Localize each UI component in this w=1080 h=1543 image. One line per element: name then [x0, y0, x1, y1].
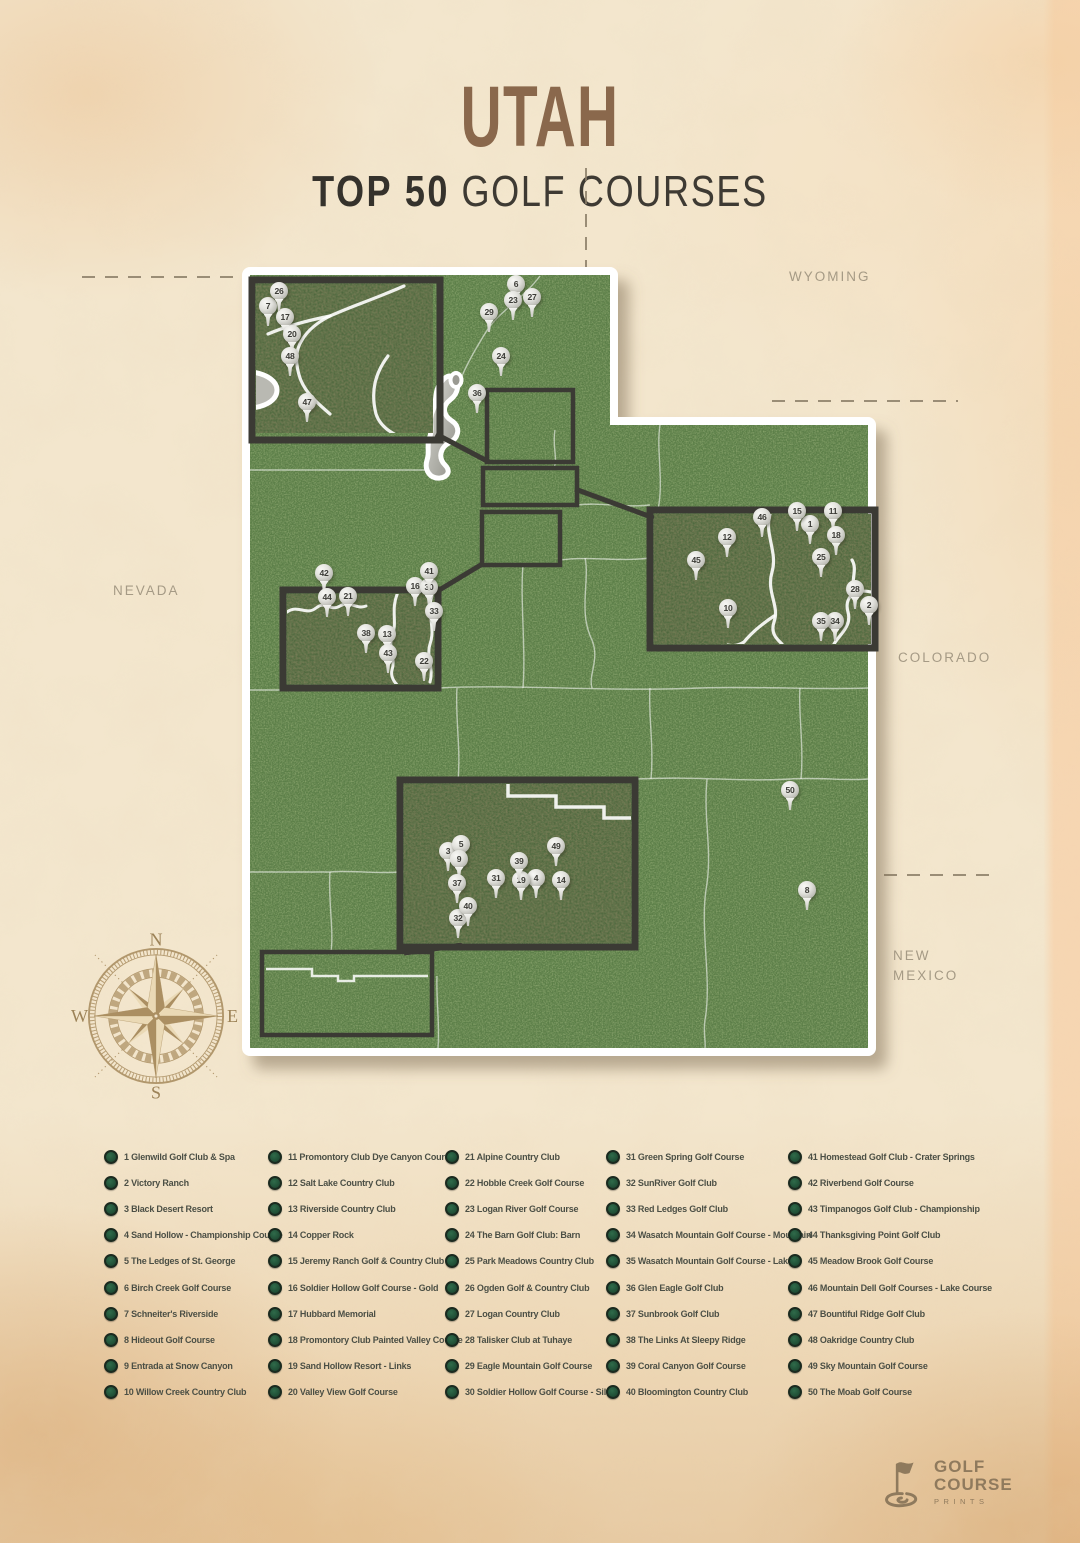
golf-ball-icon: 41 — [420, 562, 438, 580]
legend-item-6: 6 Birch Creek Golf Course — [104, 1274, 283, 1300]
golf-tee-icon — [865, 613, 874, 625]
legend-item-label: 39 Coral Canyon Golf Course — [626, 1361, 746, 1371]
legend-bullet-icon — [788, 1202, 802, 1216]
golf-tee-icon — [485, 320, 494, 332]
legend-item-13: 13 Riverside Country Club — [268, 1196, 463, 1222]
legend-item-31: 31 Green Spring Golf Course — [606, 1144, 811, 1170]
golf-tee-icon — [851, 597, 860, 609]
map-pin-31[interactable]: 31 — [486, 869, 506, 898]
map-pin-33[interactable]: 33 — [424, 602, 444, 631]
golf-ball-icon: 8 — [798, 881, 816, 899]
legend-bullet-icon — [606, 1202, 620, 1216]
map-pin-45[interactable]: 45 — [686, 551, 706, 580]
map-pin-8[interactable]: 8 — [797, 881, 817, 910]
legend-item-label: 3 Black Desert Resort — [124, 1204, 213, 1214]
legend-bullet-icon — [445, 1254, 459, 1268]
legend-item-label: 6 Birch Creek Golf Course — [124, 1283, 231, 1293]
poster: UTAH TOP 50GOLF COURSES — [0, 0, 1080, 1543]
legend-item-label: 30 Soldier Hollow Golf Course - Silver — [465, 1387, 619, 1397]
legend-item-43: 43 Timpanogos Golf Club - Championship — [788, 1196, 992, 1222]
legend-item-label: 28 Talisker Club at Tuhaye — [465, 1335, 572, 1345]
state-label-new-mexico-line2: MEXICO — [893, 966, 958, 986]
legend-item-label: 50 The Moab Golf Course — [808, 1387, 912, 1397]
map-pin-50[interactable]: 50 — [780, 781, 800, 810]
map-pin-43[interactable]: 43 — [378, 644, 398, 673]
legend-bullet-icon — [104, 1176, 118, 1190]
golf-tee-icon — [692, 568, 701, 580]
legend-item-label: 21 Alpine Country Club — [465, 1152, 560, 1162]
legend-item-label: 12 Salt Lake Country Club — [288, 1178, 395, 1188]
golf-tee-icon — [532, 886, 541, 898]
legend-bullet-icon — [445, 1281, 459, 1295]
golf-tee-icon — [817, 629, 826, 641]
legend-bullet-icon — [606, 1281, 620, 1295]
golf-tee-icon — [275, 299, 284, 311]
golf-flag-icon — [878, 1458, 930, 1512]
map-pin-28[interactable]: 28 — [845, 580, 865, 609]
state-label-colorado: COLORADO — [898, 650, 991, 665]
logo-line1: GOLF — [934, 1458, 1013, 1476]
legend-item-25: 25 Park Meadows Country Club — [445, 1248, 619, 1274]
golf-tee-icon — [430, 619, 439, 631]
golf-ball-icon: 47 — [298, 393, 316, 411]
legend-item-label: 36 Glen Eagle Golf Club — [626, 1283, 723, 1293]
golf-tee-icon — [454, 926, 463, 938]
legend-item-label: 16 Soldier Hollow Golf Course - Gold — [288, 1283, 438, 1293]
golf-ball-icon: 48 — [281, 347, 299, 365]
map-pin-25[interactable]: 25 — [811, 548, 831, 577]
legend-item-7: 7 Schneiter's Riverside — [104, 1301, 283, 1327]
legend-item-23: 23 Logan River Golf Course — [445, 1196, 619, 1222]
state-label-new-mexico: NEW MEXICO — [893, 946, 958, 987]
legend-bullet-icon — [606, 1307, 620, 1321]
legend-bullet-icon — [104, 1333, 118, 1347]
legend-item-37: 37 Sunbrook Golf Club — [606, 1301, 811, 1327]
legend-item-42: 42 Riverbend Golf Course — [788, 1170, 992, 1196]
legend-item-label: 8 Hideout Golf Course — [124, 1335, 215, 1345]
golf-ball-icon: 26 — [270, 282, 288, 300]
golf-course-prints-logo: GOLF COURSE PRINTS — [878, 1458, 1013, 1512]
legend-item-label: 15 Jeremy Ranch Golf & Country Club — [288, 1256, 444, 1266]
legend-bullet-icon — [788, 1254, 802, 1268]
legend-bullet-icon — [788, 1307, 802, 1321]
map-pin-39[interactable]: 39 — [509, 852, 529, 881]
legend-bullet-icon — [788, 1281, 802, 1295]
legend-item-8: 8 Hideout Golf Course — [104, 1327, 283, 1353]
legend-item-label: 1 Glenwild Golf Club & Spa — [124, 1152, 235, 1162]
map-pin-27[interactable]: 27 — [522, 288, 542, 317]
legend-item-label: 49 Sky Mountain Golf Course — [808, 1361, 928, 1371]
map-pin-35[interactable]: 35 — [811, 612, 831, 641]
golf-ball-icon: 40 — [459, 897, 477, 915]
legend-item-label: 5 The Ledges of St. George — [124, 1256, 235, 1266]
golf-tee-icon — [344, 604, 353, 616]
legend-bullet-icon — [104, 1254, 118, 1268]
golf-ball-icon: 9 — [450, 850, 468, 868]
legend-item-label: 45 Meadow Brook Golf Course — [808, 1256, 933, 1266]
legend-item-14: 14 Copper Rock — [268, 1222, 463, 1248]
legend-item-label: 48 Oakridge Country Club — [808, 1335, 914, 1345]
golf-ball-icon: 25 — [812, 548, 830, 566]
legend-item-28: 28 Talisker Club at Tuhaye — [445, 1327, 619, 1353]
legend-item-label: 11 Promontory Club Dye Canyon Course — [288, 1152, 454, 1162]
golf-ball-icon: 44 — [318, 588, 336, 606]
golf-ball-icon: 14 — [552, 871, 570, 889]
legend-bullet-icon — [268, 1176, 282, 1190]
legend-item-32: 32 SunRiver Golf Club — [606, 1170, 811, 1196]
golf-tee-icon — [557, 888, 566, 900]
golf-ball-icon: 23 — [504, 291, 522, 309]
golf-tee-icon — [286, 364, 295, 376]
legend-bullet-icon — [606, 1254, 620, 1268]
legend-bullet-icon — [268, 1333, 282, 1347]
compass-south-label: S — [151, 1083, 161, 1102]
legend-item-label: 22 Hobble Creek Golf Course — [465, 1178, 584, 1188]
legend-item-3: 3 Black Desert Resort — [104, 1196, 283, 1222]
golf-ball-icon: 18 — [827, 526, 845, 544]
legend-item-29: 29 Eagle Mountain Golf Course — [445, 1353, 619, 1379]
legend-item-33: 33 Red Ledges Golf Club — [606, 1196, 811, 1222]
legend-bullet-icon — [788, 1333, 802, 1347]
map-pin-29[interactable]: 29 — [479, 303, 499, 332]
compass-west-label: W — [71, 1006, 88, 1026]
golf-ball-icon: 49 — [547, 837, 565, 855]
map-pin-22[interactable]: 22 — [414, 652, 434, 681]
compass-east-label: E — [227, 1006, 238, 1026]
legend-item-45: 45 Meadow Brook Golf Course — [788, 1248, 992, 1274]
legend-item-4: 4 Sand Hollow - Championship Course — [104, 1222, 283, 1248]
legend-item-9: 9 Entrada at Snow Canyon — [104, 1353, 283, 1379]
legend-item-label: 31 Green Spring Golf Course — [626, 1152, 744, 1162]
golf-tee-icon — [758, 525, 767, 537]
legend-bullet-icon — [788, 1359, 802, 1373]
golf-tee-icon — [464, 914, 473, 926]
golf-ball-icon: 43 — [379, 644, 397, 662]
legend-bullet-icon — [445, 1150, 459, 1164]
legend-item-1: 1 Glenwild Golf Club & Spa — [104, 1144, 283, 1170]
golf-tee-icon — [509, 308, 518, 320]
legend-bullet-icon — [445, 1385, 459, 1399]
golf-tee-icon — [497, 364, 506, 376]
golf-tee-icon — [323, 605, 332, 617]
golf-tee-icon — [425, 579, 434, 591]
golf-ball-icon: 38 — [357, 624, 375, 642]
map-pin-24[interactable]: 24 — [491, 347, 511, 376]
legend-column-5: 41 Homestead Golf Club - Crater Springs4… — [788, 1144, 992, 1405]
legend-bullet-icon — [268, 1150, 282, 1164]
compass-rose-icon: N E S W — [70, 930, 242, 1102]
legend-column-2: 11 Promontory Club Dye Canyon Course12 S… — [268, 1144, 463, 1405]
golf-tee-icon — [786, 798, 795, 810]
golf-tee-icon — [492, 886, 501, 898]
legend-item-label: 23 Logan River Golf Course — [465, 1204, 578, 1214]
legend-item-label: 43 Timpanogos Golf Club - Championship — [808, 1204, 980, 1214]
legend-item-label: 37 Sunbrook Golf Club — [626, 1309, 719, 1319]
map-pin-47[interactable]: 47 — [297, 393, 317, 422]
legend-item-41: 41 Homestead Golf Club - Crater Springs — [788, 1144, 992, 1170]
golf-tee-icon — [552, 854, 561, 866]
legend-bullet-icon — [788, 1150, 802, 1164]
legend-item-2: 2 Victory Ranch — [104, 1170, 283, 1196]
legend-item-label: 27 Logan Country Club — [465, 1309, 560, 1319]
legend-item-12: 12 Salt Lake Country Club — [268, 1170, 463, 1196]
golf-tee-icon — [831, 629, 840, 641]
legend-item-label: 35 Wasatch Mountain Golf Course - Lake — [626, 1256, 793, 1266]
map-pin-46[interactable]: 46 — [752, 508, 772, 537]
golf-ball-icon: 45 — [687, 551, 705, 569]
map-pin-41[interactable]: 41 — [419, 562, 439, 591]
legend-item-label: 17 Hubbard Memorial — [288, 1309, 376, 1319]
legend-bullet-icon — [104, 1307, 118, 1321]
legend-bullet-icon — [788, 1228, 802, 1242]
map-pin-23[interactable]: 23 — [503, 291, 523, 320]
legend-bullet-icon — [268, 1385, 282, 1399]
golf-tee-icon — [420, 669, 429, 681]
golf-ball-icon: 39 — [510, 852, 528, 870]
state-label-new-mexico-line1: NEW — [893, 946, 958, 966]
legend-item-20: 20 Valley View Golf Course — [268, 1379, 463, 1405]
legend-item-label: 41 Homestead Golf Club - Crater Springs — [808, 1152, 975, 1162]
legend-bullet-icon — [606, 1333, 620, 1347]
legend-item-label: 19 Sand Hollow Resort - Links — [288, 1361, 411, 1371]
map-pin-40[interactable]: 40 — [458, 897, 478, 926]
map-pin-10[interactable]: 10 — [718, 599, 738, 628]
golf-ball-icon: 27 — [523, 288, 541, 306]
legend-bullet-icon — [104, 1385, 118, 1399]
golf-tee-icon — [803, 898, 812, 910]
golf-ball-icon: 15 — [788, 502, 806, 520]
golf-ball-icon: 10 — [719, 599, 737, 617]
legend-bullet-icon — [268, 1228, 282, 1242]
legend-item-label: 10 Willow Creek Country Club — [124, 1387, 246, 1397]
legend-item-label: 44 Thanksgiving Point Golf Club — [808, 1230, 940, 1240]
legend-bullet-icon — [445, 1307, 459, 1321]
legend-bullet-icon — [104, 1281, 118, 1295]
golf-ball-icon: 29 — [480, 303, 498, 321]
legend-bullet-icon — [606, 1385, 620, 1399]
legend-item-label: 18 Promontory Club Painted Valley Course — [288, 1335, 463, 1345]
legend-bullet-icon — [268, 1202, 282, 1216]
legend-bullet-icon — [606, 1359, 620, 1373]
legend-item-label: 40 Bloomington Country Club — [626, 1387, 748, 1397]
legend-item-48: 48 Oakridge Country Club — [788, 1327, 992, 1353]
map-pin-44[interactable]: 44 — [317, 588, 337, 617]
legend-item-label: 13 Riverside Country Club — [288, 1204, 396, 1214]
legend-bullet-icon — [606, 1228, 620, 1242]
golf-tee-icon — [515, 869, 524, 881]
legend-item-36: 36 Glen Eagle Golf Club — [606, 1274, 811, 1300]
legend-bullet-icon — [104, 1202, 118, 1216]
legend-item-label: 26 Ogden Golf & Country Club — [465, 1283, 589, 1293]
golf-ball-icon: 22 — [415, 652, 433, 670]
legend-item-16: 16 Soldier Hollow Golf Course - Gold — [268, 1274, 463, 1300]
golf-tee-icon — [723, 545, 732, 557]
map-pin-48[interactable]: 48 — [280, 347, 300, 376]
legend-bullet-icon — [445, 1202, 459, 1216]
legend-bullet-icon — [268, 1307, 282, 1321]
logo-line3: PRINTS — [934, 1497, 1013, 1506]
golf-tee-icon — [806, 532, 815, 544]
legend-item-46: 46 Mountain Dell Golf Courses - Lake Cou… — [788, 1274, 992, 1300]
legend-item-35: 35 Wasatch Mountain Golf Course - Lake — [606, 1248, 811, 1274]
legend-bullet-icon — [104, 1150, 118, 1164]
legend-item-34: 34 Wasatch Mountain Golf Course - Mounta… — [606, 1222, 811, 1248]
legend-item-label: 33 Red Ledges Golf Club — [626, 1204, 728, 1214]
legend-bullet-icon — [445, 1176, 459, 1190]
legend-item-label: 38 The Links At Sleepy Ridge — [626, 1335, 746, 1345]
legend-item-label: 46 Mountain Dell Golf Courses - Lake Cou… — [808, 1283, 992, 1293]
legend-item-label: 4 Sand Hollow - Championship Course — [124, 1230, 283, 1240]
golf-tee-icon — [817, 565, 826, 577]
legend-item-22: 22 Hobble Creek Golf Course — [445, 1170, 619, 1196]
legend-column-3: 21 Alpine Country Club22 Hobble Creek Go… — [445, 1144, 619, 1405]
legend-item-15: 15 Jeremy Ranch Golf & Country Club — [268, 1248, 463, 1274]
legend-item-19: 19 Sand Hollow Resort - Links — [268, 1353, 463, 1379]
golf-ball-icon: 11 — [824, 502, 842, 520]
legend-item-26: 26 Ogden Golf & Country Club — [445, 1274, 619, 1300]
legend-bullet-icon — [445, 1333, 459, 1347]
golf-tee-icon — [473, 401, 482, 413]
legend-item-38: 38 The Links At Sleepy Ridge — [606, 1327, 811, 1353]
legend-item-10: 10 Willow Creek Country Club — [104, 1379, 283, 1405]
legend-bullet-icon — [268, 1359, 282, 1373]
legend-bullet-icon — [788, 1176, 802, 1190]
map-pin-36[interactable]: 36 — [467, 384, 487, 413]
golf-tee-icon — [303, 410, 312, 422]
logo-line2: COURSE — [934, 1476, 1013, 1494]
golf-tee-icon — [362, 641, 371, 653]
legend-bullet-icon — [606, 1176, 620, 1190]
legend-item-27: 27 Logan Country Club — [445, 1301, 619, 1327]
state-label-nevada: NEVADA — [113, 583, 180, 598]
golf-ball-icon: 13 — [378, 625, 396, 643]
legend-item-label: 42 Riverbend Golf Course — [808, 1178, 914, 1188]
golf-ball-icon: 42 — [315, 564, 333, 582]
map-pin-14[interactable]: 14 — [551, 871, 571, 900]
legend-item-44: 44 Thanksgiving Point Golf Club — [788, 1222, 992, 1248]
legend-item-21: 21 Alpine Country Club — [445, 1144, 619, 1170]
golf-ball-icon: 31 — [487, 869, 505, 887]
compass-north-label: N — [149, 930, 162, 949]
golf-tee-icon — [384, 661, 393, 673]
map-pin-49[interactable]: 49 — [546, 837, 566, 866]
legend-bullet-icon — [445, 1228, 459, 1242]
golf-ball-icon: 35 — [812, 612, 830, 630]
map-pin-26[interactable]: 26 — [269, 282, 289, 311]
legend-bullet-icon — [788, 1385, 802, 1399]
golf-ball-icon: 36 — [468, 384, 486, 402]
legend-item-49: 49 Sky Mountain Golf Course — [788, 1353, 992, 1379]
golf-tee-icon — [264, 314, 273, 326]
legend-item-label: 32 SunRiver Golf Club — [626, 1178, 717, 1188]
legend-item-label: 9 Entrada at Snow Canyon — [124, 1361, 233, 1371]
legend-item-label: 20 Valley View Golf Course — [288, 1387, 398, 1397]
golf-ball-icon: 28 — [846, 580, 864, 598]
map-pin-12[interactable]: 12 — [717, 528, 737, 557]
legend-item-label: 14 Copper Rock — [288, 1230, 354, 1240]
legend-item-24: 24 The Barn Golf Club: Barn — [445, 1222, 619, 1248]
legend-item-5: 5 The Ledges of St. George — [104, 1248, 283, 1274]
legend-item-label: 24 The Barn Golf Club: Barn — [465, 1230, 580, 1240]
map-pin-38[interactable]: 38 — [356, 624, 376, 653]
legend-item-30: 30 Soldier Hollow Golf Course - Silver — [445, 1379, 619, 1405]
legend-item-17: 17 Hubbard Memorial — [268, 1301, 463, 1327]
legend-item-11: 11 Promontory Club Dye Canyon Course — [268, 1144, 463, 1170]
legend-bullet-icon — [104, 1359, 118, 1373]
legend-item-label: 2 Victory Ranch — [124, 1178, 189, 1188]
legend-item-47: 47 Bountiful Ridge Golf Club — [788, 1301, 992, 1327]
map-pin-15[interactable]: 15 — [787, 502, 807, 531]
golf-ball-icon: 20 — [283, 325, 301, 343]
legend-column-1: 1 Glenwild Golf Club & Spa2 Victory Ranc… — [104, 1144, 283, 1405]
golf-tee-icon — [517, 888, 526, 900]
map-pin-21[interactable]: 21 — [338, 587, 358, 616]
golf-ball-icon: 12 — [718, 528, 736, 546]
legend-bullet-icon — [445, 1359, 459, 1373]
legend-item-label: 25 Park Meadows Country Club — [465, 1256, 594, 1266]
legend-item-40: 40 Bloomington Country Club — [606, 1379, 811, 1405]
legend-column-4: 31 Green Spring Golf Course32 SunRiver G… — [606, 1144, 811, 1405]
golf-tee-icon — [724, 616, 733, 628]
legend-bullet-icon — [104, 1228, 118, 1242]
golf-tee-icon — [793, 519, 802, 531]
state-label-wyoming: WYOMING — [789, 269, 871, 284]
legend-item-label: 34 Wasatch Mountain Golf Course - Mounta… — [626, 1230, 811, 1240]
golf-tee-icon — [832, 543, 841, 555]
legend-bullet-icon — [268, 1254, 282, 1268]
legend-item-label: 7 Schneiter's Riverside — [124, 1309, 218, 1319]
golf-ball-icon: 24 — [492, 347, 510, 365]
golf-ball-icon: 50 — [781, 781, 799, 799]
golf-ball-icon: 21 — [339, 587, 357, 605]
legend-item-label: 29 Eagle Mountain Golf Course — [465, 1361, 592, 1371]
legend-item-39: 39 Coral Canyon Golf Course — [606, 1353, 811, 1379]
legend-item-18: 18 Promontory Club Painted Valley Course — [268, 1327, 463, 1353]
golf-tee-icon — [528, 305, 537, 317]
legend-item-label: 47 Bountiful Ridge Golf Club — [808, 1309, 925, 1319]
legend-bullet-icon — [606, 1150, 620, 1164]
legend-bullet-icon — [268, 1281, 282, 1295]
golf-ball-icon: 33 — [425, 602, 443, 620]
legend-item-50: 50 The Moab Golf Course — [788, 1379, 992, 1405]
golf-ball-icon: 37 — [448, 874, 466, 892]
golf-ball-icon: 46 — [753, 508, 771, 526]
